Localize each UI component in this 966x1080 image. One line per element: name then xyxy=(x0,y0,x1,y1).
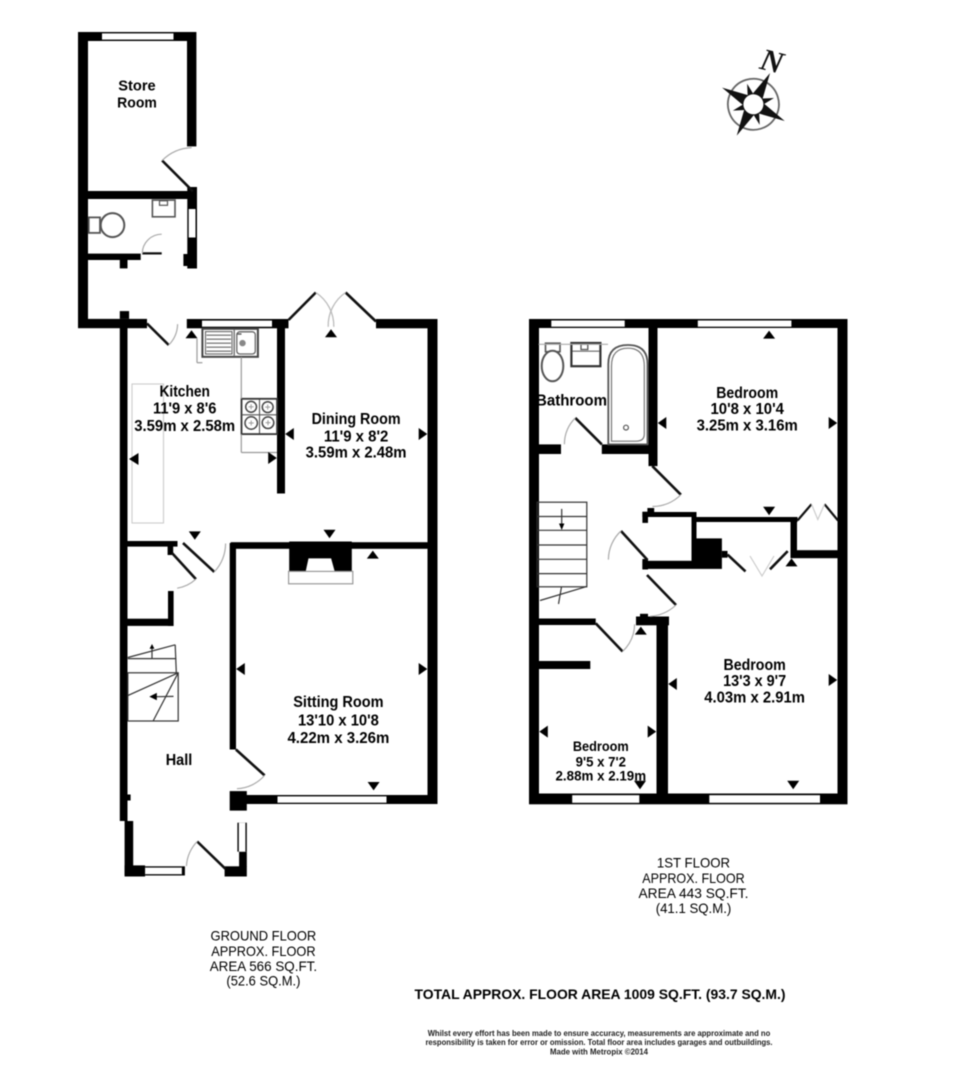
svg-text:GROUND FLOOR: GROUND FLOOR xyxy=(211,928,317,943)
svg-text:4.22m x 3.26m: 4.22m x 3.26m xyxy=(287,730,389,747)
svg-text:Bedroom: Bedroom xyxy=(716,385,778,402)
svg-text:Store: Store xyxy=(118,79,155,95)
svg-text:AREA 566 SQ.FT.: AREA 566 SQ.FT. xyxy=(210,959,317,974)
svg-text:Hall: Hall xyxy=(166,752,193,769)
svg-text:Bathroom: Bathroom xyxy=(536,393,607,410)
svg-text:3.59m x 2.48m: 3.59m x 2.48m xyxy=(306,444,407,461)
svg-text:responsibility is taken for er: responsibility is taken for error or omi… xyxy=(425,1038,772,1047)
svg-text:11'9 x 8'6: 11'9 x 8'6 xyxy=(153,400,216,417)
svg-text:3.25m x 3.16m: 3.25m x 3.16m xyxy=(697,418,798,435)
svg-text:Whilst every effort has been m: Whilst every effort has been made to ens… xyxy=(428,1029,771,1038)
svg-text:4.03m x 2.91m: 4.03m x 2.91m xyxy=(704,689,805,706)
svg-text:Sitting Room: Sitting Room xyxy=(293,694,383,711)
svg-text:Room: Room xyxy=(117,96,157,112)
svg-text:13'3 x 9'7: 13'3 x 9'7 xyxy=(723,673,786,690)
svg-text:Made with Metropix ©2014: Made with Metropix ©2014 xyxy=(550,1047,649,1056)
svg-text:3.59m x 2.58m: 3.59m x 2.58m xyxy=(134,418,235,435)
svg-text:1ST FLOOR: 1ST FLOOR xyxy=(657,856,730,871)
svg-text:Dining Room: Dining Room xyxy=(312,411,401,428)
svg-text:APPROX. FLOOR: APPROX. FLOOR xyxy=(642,871,745,886)
svg-text:2.88m x 2.19m: 2.88m x 2.19m xyxy=(556,769,647,784)
svg-text:Bedroom: Bedroom xyxy=(723,657,785,674)
svg-text:9'5 x 7'2: 9'5 x 7'2 xyxy=(576,755,627,770)
svg-text:Kitchen: Kitchen xyxy=(159,383,210,400)
svg-text:11'9 x 8'2: 11'9 x 8'2 xyxy=(324,428,389,445)
svg-text:(41.1 SQ.M.): (41.1 SQ.M.) xyxy=(656,901,732,916)
svg-text:10'8 x 10'4: 10'8 x 10'4 xyxy=(711,401,785,418)
svg-text:Bedroom: Bedroom xyxy=(573,739,629,754)
svg-text:AREA 443 SQ.FT.: AREA 443 SQ.FT. xyxy=(639,886,749,901)
svg-text:APPROX. FLOOR: APPROX. FLOOR xyxy=(211,944,316,959)
svg-text:13'10 x 10'8: 13'10 x 10'8 xyxy=(298,712,379,729)
svg-text:TOTAL APPROX. FLOOR AREA 1009: TOTAL APPROX. FLOOR AREA 1009 SQ.FT. (93… xyxy=(415,987,786,1002)
svg-text:(52.6 SQ.M.): (52.6 SQ.M.) xyxy=(226,974,300,989)
